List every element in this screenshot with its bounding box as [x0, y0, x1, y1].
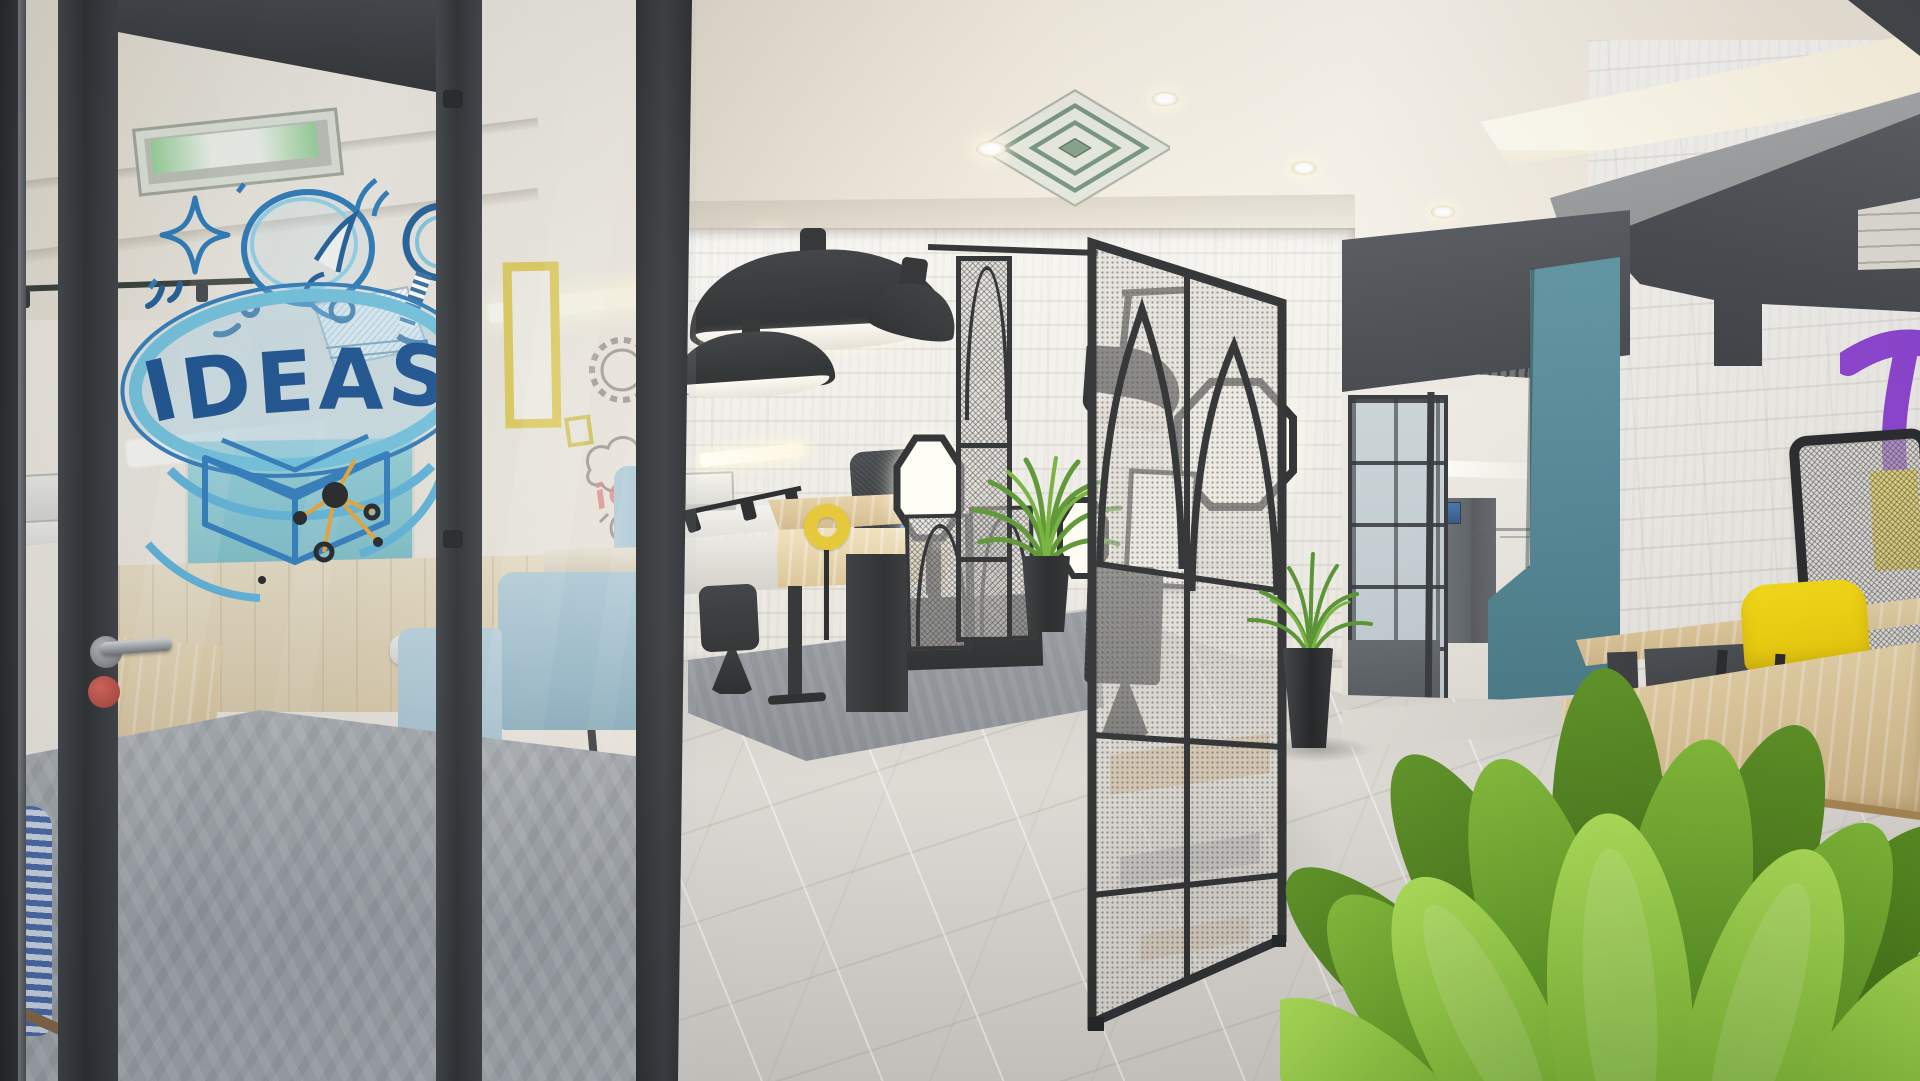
office-interior-scene: ideas [0, 0, 1920, 1081]
wall-vent-panel [1858, 198, 1920, 270]
yellow-ring-lamp-pole [824, 544, 829, 640]
yellow-ring-lamp [804, 504, 850, 550]
door-left-stile [58, 0, 118, 1081]
door-red-dot-sign [88, 676, 120, 708]
desk-leg [788, 586, 802, 702]
narrow-mesh-panel [956, 256, 1012, 642]
ideas-glass-graphic: IDEAS [110, 140, 490, 640]
glass-wall-left-post-highlight [18, 0, 26, 1081]
downlight [976, 141, 1006, 157]
door-hinge [443, 90, 463, 108]
desk-privacy-slab [846, 554, 908, 712]
mesh-arch [965, 266, 1009, 420]
mesh-rail [961, 443, 1007, 448]
tall-planter-pot [1020, 556, 1072, 632]
glass-wall-left-post [0, 0, 18, 1081]
door-hinge [443, 530, 463, 548]
downlight [1152, 92, 1179, 106]
downlight [1431, 206, 1455, 219]
sparkle-doodle [150, 184, 244, 288]
downlight [1291, 161, 1317, 175]
large-foreground-plant [1280, 598, 1920, 1081]
ceiling-air-diffuser [980, 88, 1170, 210]
office-chair-back [698, 584, 759, 653]
